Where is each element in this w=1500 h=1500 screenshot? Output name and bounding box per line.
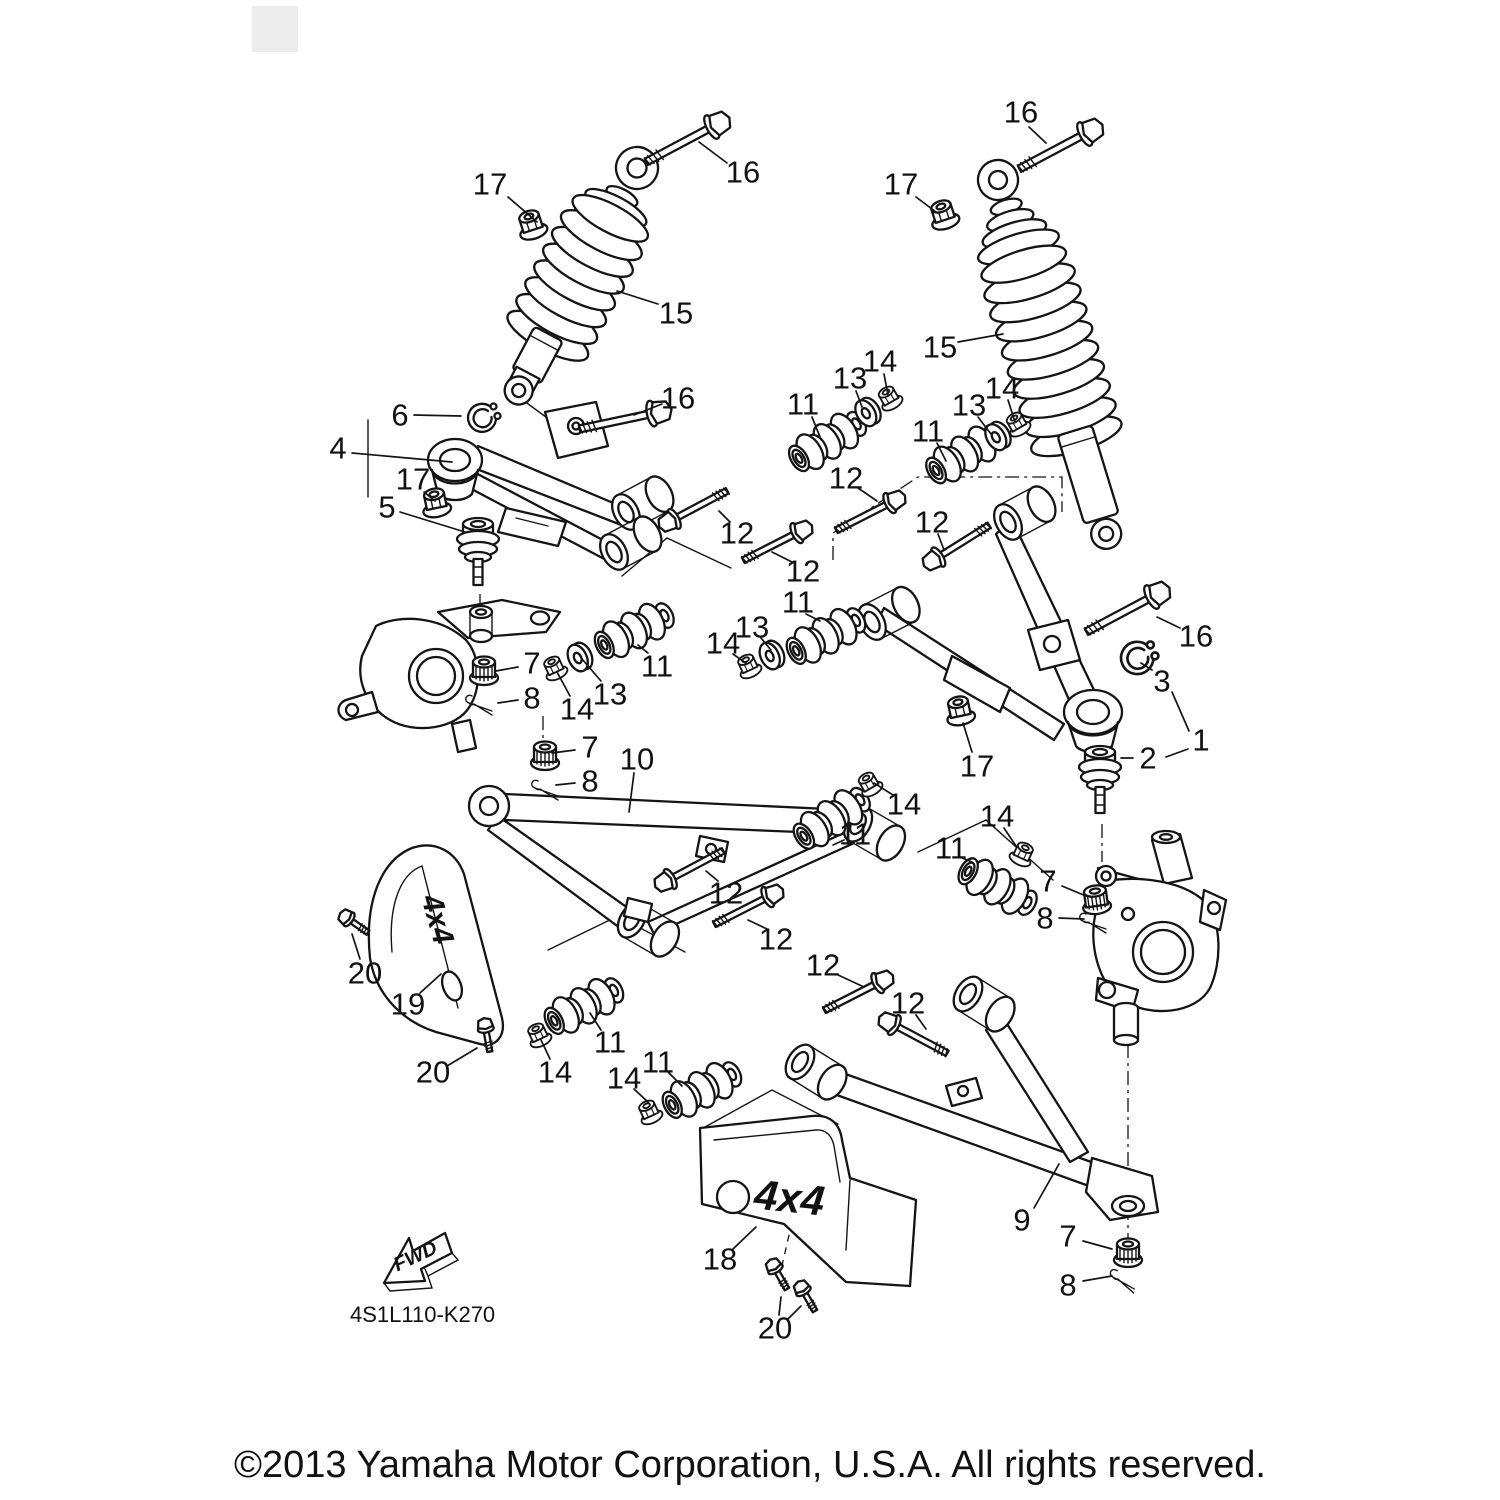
callout-12: 12 <box>759 922 793 957</box>
callout-17: 17 <box>396 462 430 497</box>
callout-12: 12 <box>829 461 863 496</box>
callout-leader-8 <box>556 783 575 785</box>
callout-11: 11 <box>935 831 967 866</box>
callout-leader-7 <box>1062 886 1086 896</box>
diagram-code: 4S1L110-K270 <box>350 1302 495 1327</box>
callout-16: 16 <box>1179 619 1213 654</box>
callout-15: 15 <box>659 296 693 331</box>
callout-leader-1 <box>1166 749 1188 757</box>
callout-14: 14 <box>706 626 740 661</box>
callout-leader-1 <box>1172 692 1189 731</box>
callout-leader-8 <box>498 700 518 703</box>
callout-10: 10 <box>620 742 654 777</box>
callout-14: 14 <box>607 1061 641 1096</box>
callout-9: 9 <box>1013 1203 1030 1238</box>
callout-20: 20 <box>348 956 382 991</box>
callout-3: 3 <box>1153 664 1170 699</box>
callout-1: 1 <box>1192 723 1209 758</box>
callout-leader-15 <box>617 291 658 304</box>
callout-13: 13 <box>952 388 986 423</box>
callout-leader-8 <box>1083 1276 1112 1281</box>
callout-4: 4 <box>329 431 346 466</box>
callout-7: 7 <box>1039 864 1056 899</box>
callout-leader-7 <box>496 667 518 671</box>
callout-2: 2 <box>1139 741 1156 776</box>
callout-17: 17 <box>960 749 994 784</box>
callout-18: 18 <box>703 1242 737 1277</box>
callout-leader-16 <box>699 142 727 163</box>
callout-11: 11 <box>642 1045 674 1080</box>
callout-8: 8 <box>581 764 598 799</box>
fwd-arrow: FWD <box>384 1233 458 1291</box>
callout-8: 8 <box>1059 1268 1076 1303</box>
callout-12: 12 <box>891 986 925 1021</box>
callout-11: 11 <box>912 414 944 449</box>
callout-13: 13 <box>593 677 627 712</box>
exploded-parts-diagram: 4x4 4x4 <box>0 0 1500 1500</box>
callout-11: 11 <box>787 387 819 422</box>
callout-19: 19 <box>391 987 425 1022</box>
callout-14: 14 <box>985 371 1019 406</box>
callout-11: 11 <box>839 817 871 852</box>
callout-17: 17 <box>473 167 507 202</box>
callout-11: 11 <box>594 1025 626 1060</box>
callout-14: 14 <box>538 1055 572 1090</box>
callout-leader-16 <box>1157 617 1180 628</box>
callout-leader-20 <box>447 1048 477 1066</box>
callout-leader-8 <box>1059 918 1084 919</box>
callout-14: 14 <box>863 344 897 379</box>
callout-14: 14 <box>560 692 594 727</box>
callout-12: 12 <box>786 554 820 589</box>
callout-7: 7 <box>523 646 540 681</box>
callout-11: 11 <box>782 585 814 620</box>
callout-16: 16 <box>726 155 760 190</box>
callout-14: 14 <box>887 787 921 822</box>
callout-leader-15 <box>958 334 1003 342</box>
callout-5: 5 <box>378 490 395 525</box>
callout-12: 12 <box>709 876 743 911</box>
callout-16: 16 <box>1004 95 1038 130</box>
callout-15: 15 <box>923 330 957 365</box>
callout-7: 7 <box>581 730 598 765</box>
callout-17: 17 <box>884 167 918 202</box>
scan-artifact <box>252 6 298 52</box>
copyright-line: ©2013 Yamaha Motor Corporation, U.S.A. A… <box>234 1444 1266 1486</box>
guard-right-label: 4x4 <box>751 1170 827 1224</box>
parts-diagram-page: 4x4 4x4 <box>0 0 1500 1500</box>
callout-20: 20 <box>416 1055 450 1090</box>
callout-leader-6 <box>414 415 461 416</box>
callout-12: 12 <box>915 505 949 540</box>
callout-16: 16 <box>661 381 695 416</box>
callout-11: 11 <box>641 649 673 684</box>
callout-7: 7 <box>1059 1219 1076 1254</box>
steering-knuckle-right <box>1093 831 1226 1045</box>
callout-leader-7 <box>1083 1241 1112 1249</box>
callout-6: 6 <box>391 398 408 433</box>
callout-12: 12 <box>720 516 754 551</box>
guard-4x4-left: 4x4 <box>369 846 503 1045</box>
callout-12: 12 <box>806 948 840 983</box>
callout-8: 8 <box>523 681 540 716</box>
callout-8: 8 <box>1036 901 1053 936</box>
callout-20: 20 <box>758 1311 792 1346</box>
callout-14: 14 <box>980 799 1014 834</box>
